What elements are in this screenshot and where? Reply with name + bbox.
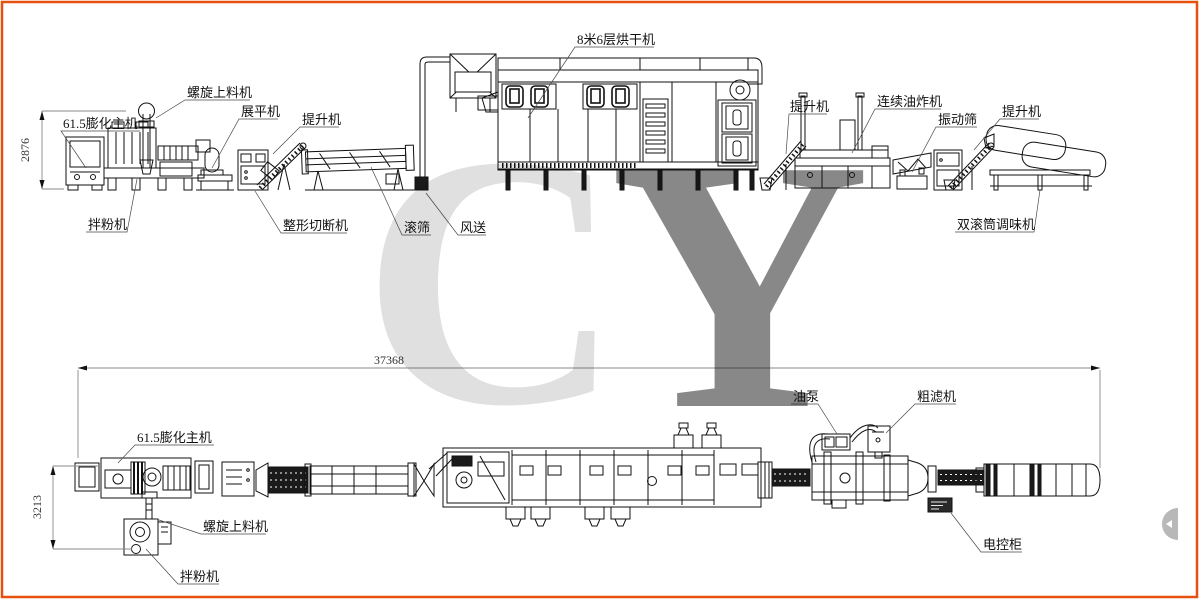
label-mixer: 拌粉机 bbox=[88, 217, 127, 232]
dimension-texts: 2876 37368 3213 bbox=[18, 138, 404, 519]
label-flattener: 展平机 bbox=[241, 104, 280, 119]
label-elevator-1: 提升机 bbox=[302, 112, 341, 127]
screw-feeder-tower bbox=[139, 103, 155, 174]
flattener-plan bbox=[222, 462, 254, 496]
height-dimension: 2876 bbox=[18, 138, 32, 162]
side-widget-button[interactable] bbox=[1162, 508, 1178, 540]
label-fryer: 连续油炸机 bbox=[877, 94, 942, 109]
mixer-plan bbox=[124, 519, 171, 555]
label-extruder: 61.5膨化主机 bbox=[63, 116, 138, 131]
elevator-3-plan bbox=[938, 470, 984, 485]
label-mixer-plan: 拌粉机 bbox=[180, 569, 219, 584]
label-vibrating-screen: 振动筛 bbox=[938, 112, 977, 127]
label-coarse-filter: 粗滤机 bbox=[917, 389, 956, 404]
label-screw-feeder: 螺旋上料机 bbox=[187, 85, 252, 100]
label-elevator-3: 提升机 bbox=[1002, 104, 1041, 119]
label-seasoning: 双滚筒调味机 bbox=[957, 217, 1035, 232]
drawing-page: 2876 37368 3213 螺旋上料机 61.5膨化主机 展平机 提升机 拌… bbox=[0, 0, 1200, 600]
label-dryer: 8米6层烘干机 bbox=[577, 32, 655, 47]
control-cabinet-plan bbox=[928, 498, 952, 512]
watermark-letter-y: Y bbox=[610, 85, 870, 484]
label-control-cabinet: 电控柜 bbox=[983, 537, 1022, 552]
screw-feeder-plan bbox=[142, 492, 157, 519]
seasoning-machine bbox=[984, 124, 1107, 190]
label-extruder-plan: 61.5膨化主机 bbox=[137, 430, 212, 445]
label-screw-feeder-plan: 螺旋上料机 bbox=[203, 519, 268, 534]
elevator-1-plan bbox=[256, 463, 308, 497]
watermark-letter-c: C bbox=[362, 81, 622, 480]
watermark: C Y bbox=[362, 81, 870, 484]
width-dimension: 3213 bbox=[30, 495, 44, 519]
cabinet-machine bbox=[934, 150, 962, 190]
seasoning-plan bbox=[976, 464, 1100, 496]
flattener-machine bbox=[196, 148, 234, 190]
label-shaping-cutter: 整形切断机 bbox=[283, 218, 348, 233]
vibrating-screen-machine bbox=[893, 153, 931, 189]
